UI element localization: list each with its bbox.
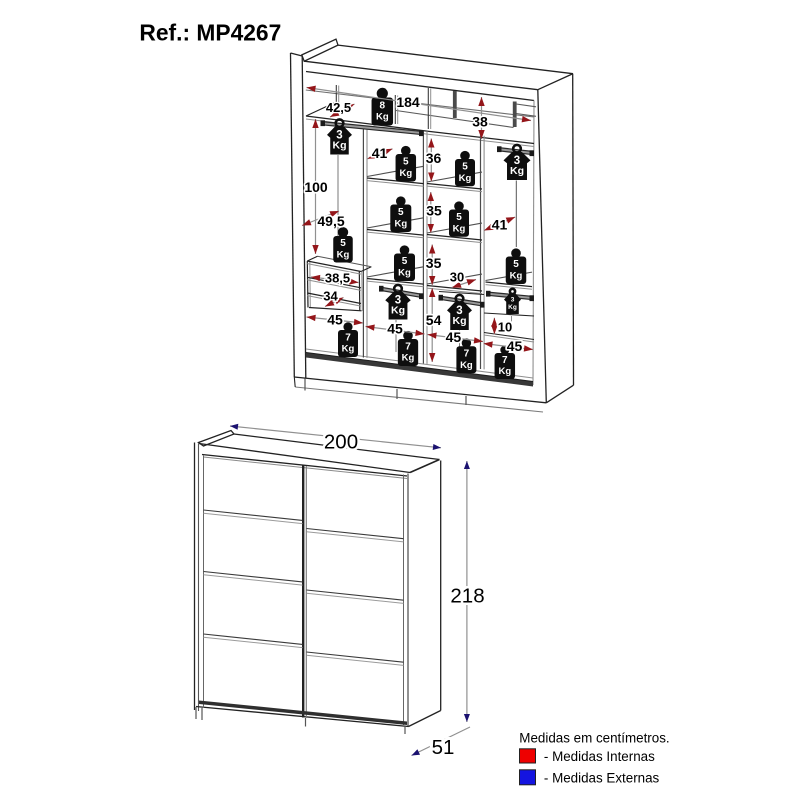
svg-text:7: 7 bbox=[464, 349, 470, 360]
svg-text:3: 3 bbox=[511, 297, 515, 304]
svg-text:36: 36 bbox=[426, 150, 442, 166]
svg-text:30: 30 bbox=[450, 270, 464, 285]
svg-text:Medidas em centímetros.: Medidas em centímetros. bbox=[519, 731, 669, 746]
svg-text:200: 200 bbox=[324, 431, 358, 454]
svg-text:54: 54 bbox=[426, 312, 442, 328]
svg-text:45: 45 bbox=[446, 329, 462, 345]
svg-text:38,5: 38,5 bbox=[325, 271, 350, 286]
svg-text:184: 184 bbox=[396, 94, 420, 110]
svg-text:35: 35 bbox=[426, 203, 442, 219]
svg-text:100: 100 bbox=[304, 179, 328, 195]
svg-text:5: 5 bbox=[456, 212, 462, 223]
svg-text:10: 10 bbox=[498, 320, 512, 335]
svg-text:49,5: 49,5 bbox=[317, 213, 344, 229]
svg-text:Kg: Kg bbox=[453, 315, 467, 327]
svg-text:35: 35 bbox=[426, 255, 442, 271]
svg-text:218: 218 bbox=[450, 585, 484, 608]
svg-text:Kg: Kg bbox=[402, 353, 415, 364]
svg-text:5: 5 bbox=[403, 157, 409, 168]
svg-text:5: 5 bbox=[398, 207, 404, 218]
svg-text:41: 41 bbox=[492, 216, 508, 232]
svg-text:5: 5 bbox=[340, 238, 346, 249]
svg-text:45: 45 bbox=[387, 321, 403, 337]
svg-text:41: 41 bbox=[372, 145, 388, 161]
svg-text:Kg: Kg bbox=[342, 344, 355, 355]
svg-text:7: 7 bbox=[502, 355, 508, 366]
svg-text:Kg: Kg bbox=[498, 366, 511, 377]
svg-text:- Medidas Externas: - Medidas Externas bbox=[544, 771, 660, 786]
svg-text:34: 34 bbox=[323, 289, 338, 304]
svg-text:Kg: Kg bbox=[394, 218, 407, 229]
svg-text:5: 5 bbox=[462, 161, 468, 172]
svg-text:Kg: Kg bbox=[510, 270, 523, 281]
svg-text:42,5: 42,5 bbox=[326, 100, 351, 115]
svg-text:Kg: Kg bbox=[391, 304, 405, 316]
svg-text:5: 5 bbox=[402, 256, 408, 267]
svg-text:8: 8 bbox=[380, 100, 386, 111]
svg-text:5: 5 bbox=[513, 259, 519, 270]
svg-text:45: 45 bbox=[507, 338, 523, 354]
svg-text:Kg: Kg bbox=[453, 223, 466, 234]
svg-text:7: 7 bbox=[345, 332, 351, 343]
svg-text:Kg: Kg bbox=[398, 267, 411, 278]
svg-text:- Medidas Internas: - Medidas Internas bbox=[544, 749, 655, 764]
svg-text:Kg: Kg bbox=[508, 304, 517, 311]
svg-text:Kg: Kg bbox=[459, 173, 472, 184]
svg-text:Kg: Kg bbox=[399, 168, 412, 179]
svg-text:Kg: Kg bbox=[337, 249, 350, 260]
svg-text:38: 38 bbox=[472, 114, 488, 130]
svg-text:7: 7 bbox=[405, 341, 411, 352]
svg-text:Ref.: MP4267: Ref.: MP4267 bbox=[139, 20, 281, 46]
svg-text:Kg: Kg bbox=[333, 139, 347, 151]
svg-text:Kg: Kg bbox=[510, 165, 524, 177]
svg-text:51: 51 bbox=[432, 736, 455, 759]
svg-text:Kg: Kg bbox=[460, 360, 473, 371]
svg-text:Kg: Kg bbox=[376, 112, 389, 123]
svg-text:45: 45 bbox=[327, 312, 343, 328]
